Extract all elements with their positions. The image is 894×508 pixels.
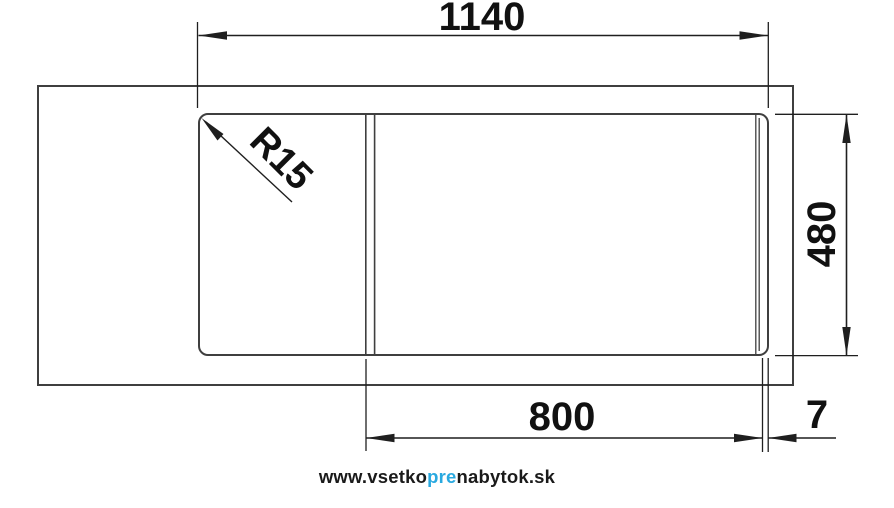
watermark-prefix: www.vsetko [319, 466, 427, 487]
arrowhead-left-icon [768, 434, 797, 442]
dimension-label-bowl-width: 800 [529, 395, 596, 439]
dimension-label-overall-width: 1140 [439, 0, 526, 39]
watermark: www.vsetkoprenabytok.sk [0, 466, 874, 488]
arrowhead-left-icon [366, 434, 395, 442]
arrowhead-right-icon [740, 31, 769, 39]
sink-dimension-drawing: 1140 480 800 7 [0, 0, 894, 508]
watermark-highlight: pre [427, 466, 456, 487]
technical-drawing-canvas: 1140 480 800 7 [0, 0, 894, 508]
outline-group [38, 86, 793, 385]
arrowhead-right-icon [734, 434, 763, 442]
dimension-label-rim-offset: 7 [806, 393, 828, 437]
watermark-suffix: nabytok.sk [456, 466, 555, 487]
dimension-rim-offset: 7 [768, 393, 836, 442]
arrowhead-up-icon [842, 115, 850, 144]
arrowhead-down-icon [842, 327, 850, 356]
arrowhead-left-icon [199, 31, 228, 39]
dimension-label-overall-depth: 480 [800, 201, 844, 268]
